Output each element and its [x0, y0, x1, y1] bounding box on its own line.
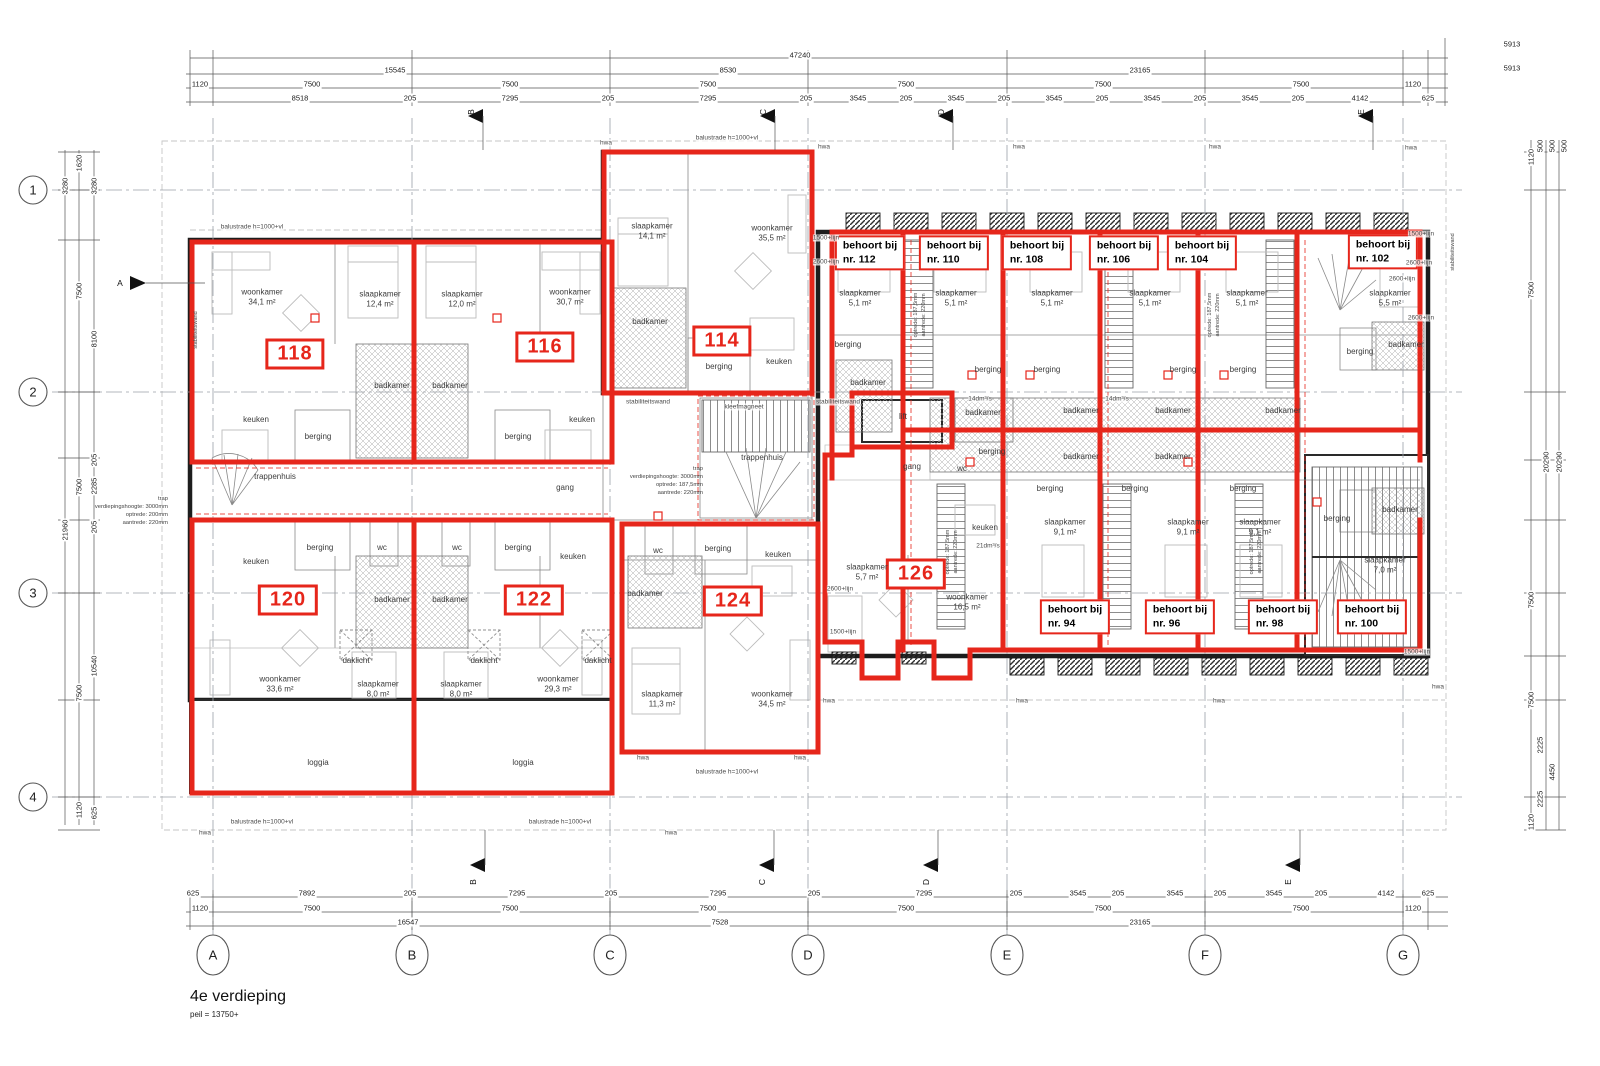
- room-label: berging: [307, 543, 334, 553]
- behoort-label-110: behoort bijnr. 110: [919, 235, 989, 270]
- annotation-hwa: hwa: [794, 755, 806, 762]
- dim-label: 7295: [699, 94, 718, 103]
- drawing-title: 4e verdieping: [190, 988, 286, 1006]
- dim-label: 205: [90, 520, 99, 535]
- section-flag-letter: E: [1356, 109, 1366, 115]
- dim-label: 7500: [1094, 904, 1113, 913]
- dim-label: 7500: [897, 80, 916, 89]
- annotation-balustrade: balustrade h=1000+vl: [696, 769, 759, 776]
- room-label: berging: [705, 544, 732, 554]
- dim-label: 3545: [1241, 94, 1260, 103]
- room-label: gang: [903, 462, 921, 472]
- annotation-stair: aantrede: 220mm: [921, 293, 927, 336]
- behoort-label-106: behoort bijnr. 106: [1089, 235, 1159, 270]
- dim-label: 23165: [1129, 918, 1152, 927]
- dim-label: 7500: [1292, 904, 1311, 913]
- dim-label: 8100: [90, 330, 99, 349]
- annotation-ventilation: 21dm³/s: [976, 543, 999, 550]
- dim-label: 3280: [90, 177, 99, 196]
- annotation-stabiliteitswand: stabiliteitswand: [626, 399, 670, 406]
- room-label: badkamer: [1388, 340, 1424, 350]
- room-label: berging: [706, 362, 733, 372]
- annotation-kleefmagneet: kleefmagneet: [724, 404, 763, 411]
- dim-label: 7500: [699, 904, 718, 913]
- annotation-hwa: hwa: [1013, 144, 1025, 151]
- grid-col-label: D: [803, 948, 812, 963]
- room-label: slaapkamer5,1 m²: [1226, 289, 1267, 310]
- dim-label: 3545: [1069, 889, 1088, 898]
- dim-label: 7295: [508, 889, 527, 898]
- grid-col-label: E: [1003, 948, 1012, 963]
- floor-plan-drawing: 1 2 3 4 A B C D E F G A B C D E B C D E: [0, 0, 1600, 1066]
- dim-label: 4450: [1548, 763, 1557, 782]
- annotation-hwa: hwa: [665, 830, 677, 837]
- behoort-label-94: behoort bijnr. 94: [1040, 599, 1110, 634]
- annotation-hwa: hwa: [637, 755, 649, 762]
- room-label: keuken: [765, 550, 791, 560]
- room-label: berging: [1230, 365, 1257, 375]
- section-flag-letter: B: [468, 879, 478, 885]
- dim-label: 3545: [849, 94, 868, 103]
- grid-row-label: 1: [29, 183, 36, 198]
- grid-col-label: B: [408, 948, 417, 963]
- dim-label: 20290: [1542, 451, 1551, 474]
- annotation-balustrade: balustrade h=1000+vl: [221, 224, 284, 231]
- room-label: slaapkamer9,1 m²: [1167, 518, 1208, 539]
- dim-label: 47240: [789, 51, 812, 60]
- room-label: berging: [505, 432, 532, 442]
- dim-label: 205: [997, 94, 1012, 103]
- room-label: berging: [1230, 484, 1257, 494]
- room-label: berging: [305, 432, 332, 442]
- dim-label: 7295: [915, 889, 934, 898]
- annotation-hwa: hwa: [199, 830, 211, 837]
- room-label: keuken: [243, 415, 269, 425]
- unit-number-116: 116: [515, 332, 574, 363]
- room-label: slaapkamer5,5 m²: [1369, 289, 1410, 310]
- room-label: badkamer: [1155, 452, 1191, 462]
- annotation-trap-note: trap verdiepingshoogte: 3000mm optrede: …: [630, 465, 703, 497]
- dim-label: 205: [403, 889, 418, 898]
- unit-number-114: 114: [692, 326, 751, 357]
- dim-label: 500: [1548, 139, 1557, 154]
- room-label: keuken: [569, 415, 595, 425]
- dim-label: 5913: [1503, 40, 1522, 49]
- room-label: badkamer: [1382, 505, 1418, 515]
- annotation-ventilation: 14dm³/s: [1105, 396, 1128, 403]
- dim-label: 7500: [897, 904, 916, 913]
- room-label: woonkamer30,7 m²: [549, 288, 590, 309]
- annotation-ventilation: 14dm³/s: [968, 396, 991, 403]
- room-label: badkamer: [1063, 406, 1099, 416]
- dim-label: 500: [1536, 139, 1545, 154]
- room-label: slaapkamer8,0 m²: [440, 680, 481, 701]
- dim-label: 7500: [1527, 691, 1536, 710]
- section-flag-letter: C: [757, 879, 767, 885]
- dim-label: 625: [1421, 889, 1436, 898]
- dim-label: 7528: [711, 918, 730, 927]
- room-label: lift: [899, 412, 907, 422]
- dim-label: 7500: [75, 684, 84, 703]
- room-label: woonkamer33,6 m²: [259, 675, 300, 696]
- room-label: berging: [1037, 484, 1064, 494]
- room-label: berging: [1347, 347, 1374, 357]
- unit-number-122: 122: [504, 585, 564, 616]
- annotation-lijn: 1500+lijn: [1404, 649, 1430, 656]
- dim-label: 205: [604, 889, 619, 898]
- room-label: wc: [452, 543, 462, 553]
- room-label: slaapkamer5,7 m²: [846, 563, 887, 584]
- annotation-hwa: hwa: [1213, 698, 1225, 705]
- dim-label: 2225: [1536, 790, 1545, 809]
- drawing-level: peil = 13750+: [190, 1010, 239, 1019]
- dim-label: 625: [186, 889, 201, 898]
- dim-label: 8518: [291, 94, 310, 103]
- room-label: slaapkamer5,1 m²: [839, 289, 880, 310]
- dim-label: 7500: [75, 282, 84, 301]
- room-label: slaapkamer5,1 m²: [1031, 289, 1072, 310]
- grid-col-label: G: [1398, 948, 1408, 963]
- dim-label: 1120: [191, 904, 209, 913]
- dim-label: 3545: [1265, 889, 1284, 898]
- room-label: trappenhuis: [254, 472, 296, 482]
- dim-label: 7500: [1094, 80, 1113, 89]
- annotation-hwa: hwa: [1209, 144, 1221, 151]
- behoort-label-112: behoort bijnr. 112: [835, 235, 905, 270]
- annotation-stair: optrede: 187,5mm: [913, 293, 919, 338]
- annotation-stabiliteitswand: stabiliteitswand: [1450, 233, 1456, 270]
- room-label: woonkamer29,3 m²: [537, 675, 578, 696]
- annotation-lijn: 1500+lijn: [1408, 231, 1434, 238]
- room-label: woonkamer16,5 m²: [946, 593, 987, 614]
- dim-label: 2225: [1536, 736, 1545, 755]
- room-label: badkamer: [1265, 406, 1301, 416]
- dim-label: 7500: [303, 904, 322, 913]
- dim-label: 3545: [947, 94, 966, 103]
- room-label: daklicht: [470, 656, 497, 666]
- behoort-label-100: behoort bijnr. 100: [1337, 599, 1407, 634]
- room-label: slaapkamer5,1 m²: [1129, 289, 1170, 310]
- dim-label: 7500: [501, 80, 520, 89]
- grid-row-label: 4: [29, 790, 36, 805]
- room-label: loggia: [512, 758, 533, 768]
- dim-label: 7500: [1292, 80, 1311, 89]
- dim-label: 205: [1193, 94, 1208, 103]
- room-label: slaapkamer5,1 m²: [935, 289, 976, 310]
- section-flag-letter: C: [758, 109, 768, 115]
- section-flag-letter: A: [117, 278, 123, 288]
- room-label: trappenhuis: [741, 453, 783, 463]
- dim-label: 205: [601, 94, 616, 103]
- dim-label: 205: [1009, 889, 1024, 898]
- room-label: berging: [1170, 365, 1197, 375]
- room-label: wc: [377, 543, 387, 553]
- room-label: woonkamer34,1 m²: [241, 288, 282, 309]
- annotation-balustrade: balustrade h=1000+vl: [696, 135, 759, 142]
- room-label: berging: [975, 365, 1002, 375]
- section-flag-letter: D: [936, 109, 946, 115]
- annotation-trap-note: trap verdiepingshoogte: 3000mm optrede: …: [95, 495, 168, 527]
- annotation-stair: optrede: 187,5mm: [1249, 530, 1255, 575]
- dim-label: 1120: [191, 80, 209, 89]
- dim-label: 1620: [75, 154, 84, 173]
- room-label: berging: [505, 543, 532, 553]
- annotation-balustrade: balustrade h=1000+vl: [231, 819, 294, 826]
- dim-label: 21960: [61, 519, 70, 542]
- annotation-lijn: 2600+lijn: [1406, 260, 1432, 267]
- dim-label: 7500: [1527, 281, 1536, 300]
- room-label: woonkamer35,5 m²: [751, 224, 792, 245]
- section-flag-letter: D: [921, 879, 931, 885]
- annotation-hwa: hwa: [600, 140, 612, 147]
- room-label: gang: [556, 483, 574, 493]
- room-label: keuken: [972, 523, 998, 533]
- dim-label: 7295: [501, 94, 520, 103]
- behoort-label-98: behoort bijnr. 98: [1248, 599, 1318, 634]
- room-label: woonkamer34,5 m²: [751, 690, 792, 711]
- annotation-stabiliteitswand: stabiliteitswand: [816, 399, 860, 406]
- annotation-lijn: 2600+lijn: [1408, 315, 1434, 322]
- dim-label: 3545: [1045, 94, 1064, 103]
- annotation-lijn: 2600+lijn: [827, 586, 853, 593]
- dim-label: 7295: [709, 889, 728, 898]
- room-label: slaapkamer14,1 m²: [631, 222, 672, 243]
- grid-row-label: 2: [29, 385, 36, 400]
- behoort-label-108: behoort bijnr. 108: [1002, 235, 1072, 270]
- dim-label: 23165: [1129, 66, 1152, 75]
- dim-label: 2285: [90, 477, 99, 496]
- annotation-stabiliteitswand: stabiliteitswand: [193, 311, 199, 348]
- room-label: keuken: [766, 357, 792, 367]
- dim-label: 1120: [1404, 904, 1422, 913]
- dim-label: 8530: [719, 66, 738, 75]
- room-label: slaapkamer9,1 m²: [1044, 518, 1085, 539]
- room-label: badkamer: [1063, 452, 1099, 462]
- room-label: badkamer: [432, 381, 468, 391]
- room-label: badkamer: [627, 589, 663, 599]
- room-label: slaapkamer12,0 m²: [441, 290, 482, 311]
- annotation-stair: optrede: 187,5mm: [945, 530, 951, 575]
- dim-label: 205: [1095, 94, 1110, 103]
- dim-label: 1120: [1527, 813, 1536, 831]
- dim-label: 205: [90, 453, 99, 468]
- unit-number-118: 118: [265, 339, 324, 370]
- annotation-lijn: 1500+lijn: [813, 235, 839, 242]
- room-label: daklicht: [342, 656, 369, 666]
- dim-label: 1120: [75, 801, 84, 819]
- section-flag-letter: E: [1283, 879, 1293, 885]
- dim-label: 7500: [1527, 591, 1536, 610]
- room-label: slaapkamer11,3 m²: [641, 690, 682, 711]
- room-label: wc: [653, 546, 663, 556]
- dim-label: 3545: [1143, 94, 1162, 103]
- room-label: berging: [1122, 484, 1149, 494]
- room-label: keuken: [243, 557, 269, 567]
- dim-label: 5913: [1503, 64, 1522, 73]
- annotation-hwa: hwa: [823, 698, 835, 705]
- dim-label: 7500: [699, 80, 718, 89]
- dim-label: 205: [403, 94, 418, 103]
- annotation-hwa: hwa: [818, 144, 830, 151]
- grid-col-label: A: [209, 948, 218, 963]
- room-label: daklicht: [584, 656, 611, 666]
- dim-label: 4142: [1377, 889, 1396, 898]
- room-label: badkamer: [374, 381, 410, 391]
- room-label: loggia: [307, 758, 328, 768]
- dim-label: 4142: [1351, 94, 1370, 103]
- room-label: slaapkamer7,0 m²: [1364, 556, 1405, 577]
- dim-label: 7500: [75, 478, 84, 497]
- annotation-balustrade: balustrade h=1000+vl: [529, 819, 592, 826]
- room-label: berging: [1034, 365, 1061, 375]
- room-label: slaapkamer8,0 m²: [357, 680, 398, 701]
- annotation-lijn: 1500+lijn: [830, 629, 856, 636]
- dim-label: 625: [90, 806, 99, 821]
- dim-label: 7500: [303, 80, 322, 89]
- dim-label: 205: [1314, 889, 1329, 898]
- dim-label: 3280: [61, 177, 70, 196]
- room-label: badkamer: [965, 408, 1001, 418]
- annotation-hwa: hwa: [1016, 698, 1028, 705]
- room-label: slaapkamer12,4 m²: [359, 290, 400, 311]
- room-label: badkamer: [850, 378, 886, 388]
- annotation-hwa: hwa: [1432, 684, 1444, 691]
- room-label: wc: [957, 464, 967, 474]
- room-label: badkamer: [374, 595, 410, 605]
- unit-number-126: 126: [886, 559, 946, 590]
- annotation-hwa: hwa: [1405, 145, 1417, 152]
- room-label: keuken: [560, 552, 586, 562]
- dim-label: 500: [1560, 139, 1569, 154]
- room-label: berging: [979, 447, 1006, 457]
- annotation-stair: aantrede: 220mm: [953, 530, 959, 573]
- room-label: badkamer: [632, 317, 668, 327]
- grid-row-label: 3: [29, 586, 36, 601]
- section-flag-letter: B: [466, 109, 476, 115]
- dim-label: 625: [1421, 94, 1436, 103]
- floor-plan-sheet: 1 2 3 4 A B C D E F G A B C D E B C D E …: [0, 0, 1600, 1066]
- dim-label: 1120: [1404, 80, 1422, 89]
- dim-label: 205: [1111, 889, 1126, 898]
- dim-label: 205: [1213, 889, 1228, 898]
- room-label: badkamer: [432, 595, 468, 605]
- dim-label: 205: [799, 94, 814, 103]
- dim-label: 7892: [298, 889, 317, 898]
- room-label: berging: [835, 340, 862, 350]
- unit-number-124: 124: [703, 586, 763, 617]
- dim-label: 7500: [501, 904, 520, 913]
- behoort-label-104: behoort bijnr. 104: [1167, 235, 1237, 270]
- dim-label: 205: [1291, 94, 1306, 103]
- grid-col-label: C: [605, 948, 614, 963]
- dim-label: 20290: [1555, 451, 1564, 474]
- annotation-stair: aantrede: 220mm: [1257, 530, 1263, 573]
- annotation-lijn: 2600+lijn: [813, 259, 839, 266]
- annotation-lijn: 2600+lijn: [1389, 276, 1415, 283]
- grid-col-label: F: [1201, 948, 1209, 963]
- room-label: badkamer: [1155, 406, 1191, 416]
- dim-label: 205: [899, 94, 914, 103]
- unit-number-120: 120: [258, 585, 318, 616]
- annotation-stair: aantrede: 220mm: [1215, 293, 1221, 336]
- dim-label: 1120: [1527, 148, 1536, 166]
- dim-label: 16547: [397, 918, 420, 927]
- behoort-label-96: behoort bijnr. 96: [1145, 599, 1215, 634]
- annotation-stair: optrede: 187,5mm: [1207, 293, 1213, 338]
- dim-label: 15545: [384, 66, 407, 75]
- room-label: berging: [1324, 514, 1351, 524]
- dim-label: 205: [807, 889, 822, 898]
- dim-label: 10540: [90, 655, 99, 678]
- dim-label: 3545: [1166, 889, 1185, 898]
